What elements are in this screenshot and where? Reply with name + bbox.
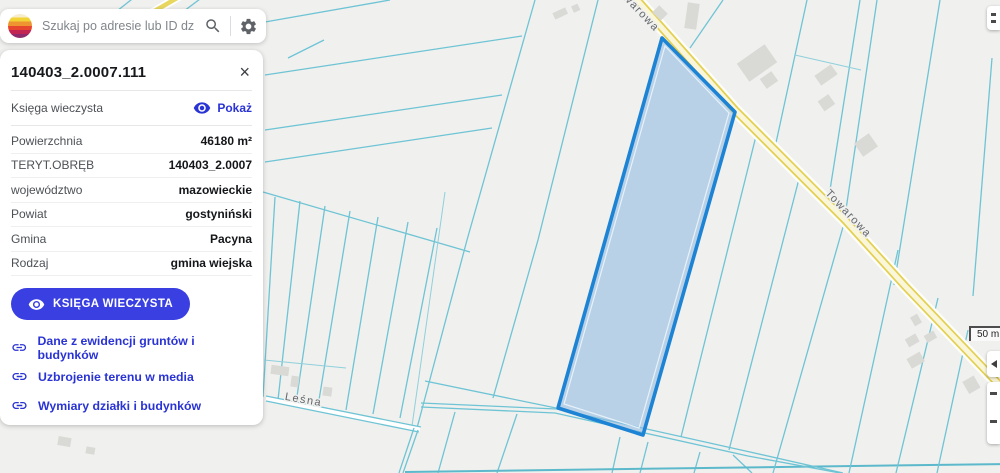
row-label: Rodzaj bbox=[11, 256, 48, 270]
row-powierzchnia: Powierzchnia 46180 m² bbox=[11, 129, 252, 154]
app-logo-icon[interactable] bbox=[8, 14, 32, 38]
row-value: Pacyna bbox=[210, 232, 252, 246]
map-scale-bar: 50 m bbox=[969, 326, 1000, 341]
row-label: Powiat bbox=[11, 207, 47, 221]
link-wymiary[interactable]: Wymiary działki i budynków bbox=[11, 391, 252, 420]
row-value: mazowieckie bbox=[179, 183, 252, 197]
street-label-towarowa-top: Towarowa bbox=[611, 0, 662, 34]
kw-row-label: Księga wieczysta bbox=[11, 101, 103, 115]
ksiega-wieczysta-button-label: KSIĘGA WIECZYSTA bbox=[53, 298, 173, 310]
row-teryt: TERYT.OBRĘB 140403_2.0007 bbox=[11, 154, 252, 179]
row-label: Gmina bbox=[11, 232, 46, 246]
row-wojewodztwo: województwo mazowieckie bbox=[11, 178, 252, 203]
row-value: gmina wiejska bbox=[171, 256, 252, 270]
selected-parcel[interactable] bbox=[558, 38, 735, 435]
link-icon bbox=[11, 339, 27, 356]
search-icon[interactable] bbox=[204, 17, 222, 35]
row-label: TERYT.OBRĘB bbox=[11, 158, 94, 172]
row-label: województwo bbox=[11, 183, 82, 197]
eye-icon bbox=[193, 99, 211, 117]
kw-show-link[interactable]: Pokaż bbox=[193, 99, 252, 117]
parcel-id-title: 140403_2.0007.111 bbox=[11, 64, 146, 81]
row-rodzaj: Rodzaj gmina wiejska bbox=[11, 252, 252, 277]
row-value: 140403_2.0007 bbox=[169, 158, 252, 172]
row-gmina: Gmina Pacyna bbox=[11, 227, 252, 252]
link-label: Uzbrojenie terenu w media bbox=[38, 370, 194, 384]
row-value: 46180 m² bbox=[201, 134, 252, 148]
link-label: Dane z ewidencji gruntów i budynków bbox=[37, 334, 252, 362]
parcel-info-panel: 140403_2.0007.111 × Księga wieczysta Pok… bbox=[0, 50, 263, 425]
link-icon bbox=[11, 368, 28, 385]
panel-links: Dane z ewidencji gruntów i budynków Uzbr… bbox=[11, 333, 252, 420]
eye-icon bbox=[28, 296, 45, 313]
search-bar bbox=[0, 9, 266, 43]
ksiega-wieczysta-button[interactable]: KSIĘGA WIECZYSTA bbox=[11, 288, 190, 320]
map-control-zoom[interactable] bbox=[987, 382, 1000, 444]
row-value: gostyniński bbox=[185, 207, 252, 221]
map-control-locate[interactable] bbox=[987, 351, 1000, 377]
link-ewidencja[interactable]: Dane z ewidencji gruntów i budynków bbox=[11, 333, 252, 362]
link-icon bbox=[11, 397, 28, 414]
kw-show-label: Pokaż bbox=[217, 101, 252, 115]
search-input[interactable] bbox=[40, 18, 196, 34]
search-divider bbox=[230, 16, 231, 36]
link-label: Wymiary działki i budynków bbox=[38, 399, 201, 413]
settings-gear-icon[interactable] bbox=[239, 17, 258, 36]
map-control-top-right[interactable] bbox=[987, 6, 1000, 30]
link-uzbrojenie[interactable]: Uzbrojenie terenu w media bbox=[11, 362, 252, 391]
close-icon[interactable]: × bbox=[237, 63, 252, 81]
row-label: Powierzchnia bbox=[11, 134, 82, 148]
row-powiat: Powiat gostyniński bbox=[11, 203, 252, 228]
